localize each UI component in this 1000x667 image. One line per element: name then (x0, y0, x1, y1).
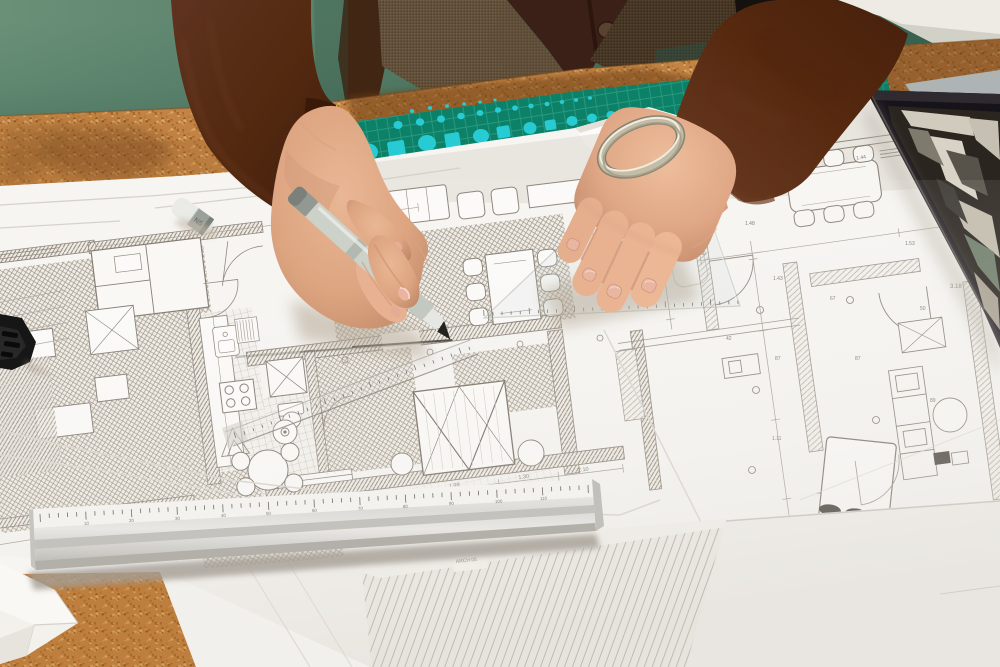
svg-text:90: 90 (449, 501, 455, 506)
svg-text:10: 10 (84, 521, 90, 526)
svg-text:40: 40 (221, 513, 227, 518)
svg-text:50: 50 (266, 511, 272, 516)
svg-text:60: 60 (312, 508, 318, 513)
svg-text:20: 20 (129, 518, 135, 523)
svg-text:80: 80 (403, 504, 409, 509)
svg-text:70: 70 (358, 506, 364, 511)
svg-text:30: 30 (175, 516, 181, 521)
svg-text:110: 110 (540, 496, 548, 501)
svg-text:100: 100 (495, 499, 503, 504)
